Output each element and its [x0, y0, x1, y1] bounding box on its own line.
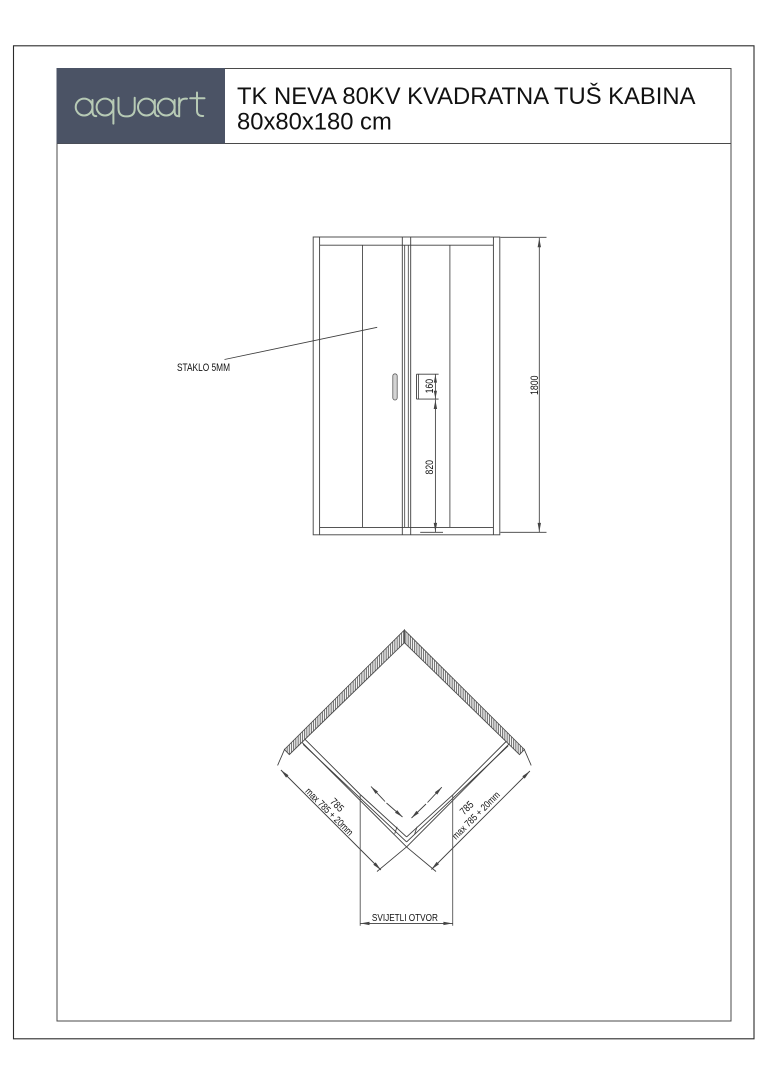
- svg-text:TK NEVA 80KV KVADRATNA TUŠ KAB: TK NEVA 80KV KVADRATNA TUŠ KABINA: [237, 82, 696, 110]
- svg-text:STAKLO 5MM: STAKLO 5MM: [177, 362, 230, 374]
- svg-text:SVIJETLI OTVOR: SVIJETLI OTVOR: [372, 913, 438, 924]
- svg-text:820: 820: [424, 460, 436, 475]
- svg-text:160: 160: [424, 379, 436, 394]
- svg-text:1800: 1800: [529, 376, 541, 396]
- svg-text:max 785 + 20mm: max 785 + 20mm: [450, 790, 502, 842]
- svg-text:80x80x180 cm: 80x80x180 cm: [237, 109, 392, 136]
- svg-text:max 785 + 20mm: max 785 + 20mm: [303, 786, 355, 838]
